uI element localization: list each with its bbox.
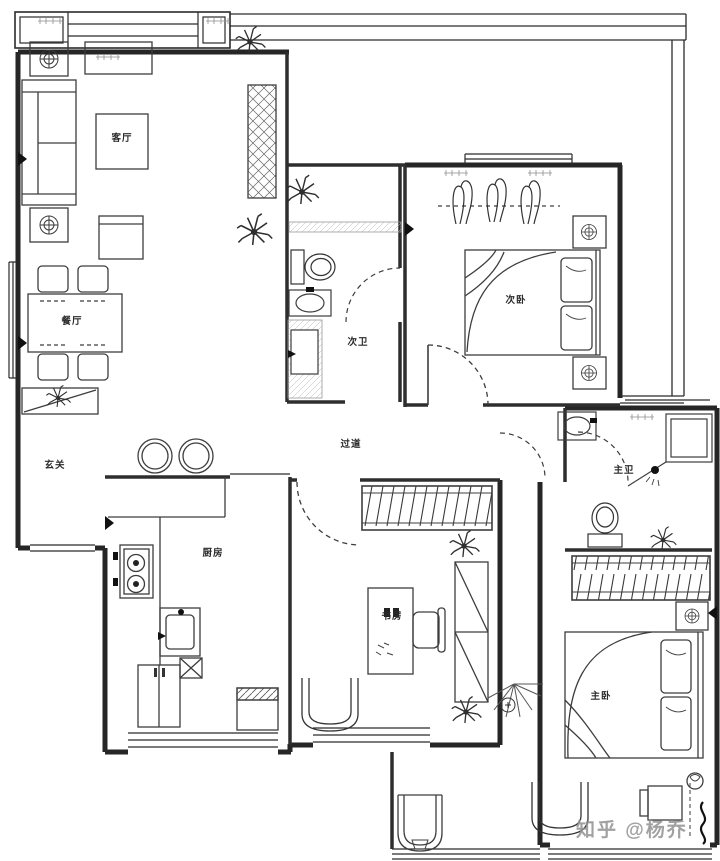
hanger-icon <box>521 181 540 224</box>
floorplan-canvas: 客厅 餐厅 玄关 厨房 次卫 过道 次卧 书房 主卫 主卧 知乎 @杨乔 <box>0 0 720 861</box>
armchair-square <box>99 216 143 259</box>
desk-chair <box>413 608 445 652</box>
plant-icon <box>286 175 318 204</box>
door-swing <box>346 268 400 322</box>
nightstand <box>676 602 708 630</box>
bookcase <box>455 562 488 702</box>
flower-icon <box>687 773 703 789</box>
fridge <box>138 665 180 727</box>
bar-stool <box>138 439 172 473</box>
nightstand <box>573 216 606 248</box>
master-bedroom-furniture <box>532 602 708 844</box>
vanity <box>288 320 322 398</box>
shower <box>628 414 712 486</box>
dimension-marks <box>38 18 654 420</box>
room-label-second-bedroom: 次卧 <box>505 292 526 306</box>
dining-chair <box>38 266 68 292</box>
entry-furniture <box>22 385 98 414</box>
bed <box>565 632 703 758</box>
master-closet <box>572 556 710 600</box>
sofa <box>22 80 76 205</box>
kitchen-furniture <box>108 439 278 730</box>
room-label-dining-room: 餐厅 <box>61 313 82 327</box>
toilet <box>588 503 622 547</box>
room-label-master-bedroom: 主卧 <box>590 688 611 702</box>
room-label-kitchen: 厨房 <box>202 545 223 559</box>
plant-icon <box>237 214 272 245</box>
door-swing <box>428 345 488 405</box>
room-label-hallway: 过道 <box>340 436 361 450</box>
toilet <box>291 250 335 284</box>
dining-chair <box>38 354 68 380</box>
kitchen-sink <box>158 608 200 656</box>
floorplan-drawing <box>0 0 720 861</box>
room-label-living-room: 客厅 <box>111 130 132 144</box>
room-label-entry: 玄关 <box>44 457 65 471</box>
ceiling-light-icon <box>488 684 543 717</box>
threshold <box>289 222 401 232</box>
water-heater <box>180 658 202 678</box>
room-label-second-bathroom: 次卫 <box>347 334 368 348</box>
tv-cabinet <box>85 42 152 74</box>
flue-shaft <box>248 85 276 198</box>
hanger-icon <box>453 181 472 224</box>
plant-icon <box>452 697 482 723</box>
bed <box>465 250 600 355</box>
plant-icon <box>450 531 480 557</box>
watermark: 知乎 @杨乔 <box>576 815 688 842</box>
master-bathroom-fixtures <box>558 412 712 550</box>
armchair <box>302 678 358 731</box>
wardrobe <box>362 486 492 530</box>
basin-tub <box>398 795 442 851</box>
second-bathroom-fixtures <box>286 175 401 398</box>
wall-basin <box>289 287 331 316</box>
walls-exterior <box>18 52 717 845</box>
dining-chair <box>78 266 108 292</box>
study-furniture <box>297 482 492 731</box>
stove <box>113 545 153 598</box>
bar-stool <box>179 439 213 473</box>
dining-chair <box>78 354 108 380</box>
decor-squiggle <box>701 802 705 844</box>
suite-door <box>500 433 545 478</box>
nightstand <box>573 357 606 389</box>
washing-machine <box>237 688 278 730</box>
side-table-bottom <box>30 208 68 242</box>
side-table-top <box>30 42 68 76</box>
hanger-icon <box>487 179 506 222</box>
living-room-furniture <box>22 42 276 259</box>
door-swing <box>297 482 360 545</box>
room-label-study: 书房 <box>381 608 402 622</box>
room-label-master-bathroom: 主卫 <box>613 462 634 476</box>
desk <box>368 588 413 674</box>
plant-icon <box>651 527 677 550</box>
